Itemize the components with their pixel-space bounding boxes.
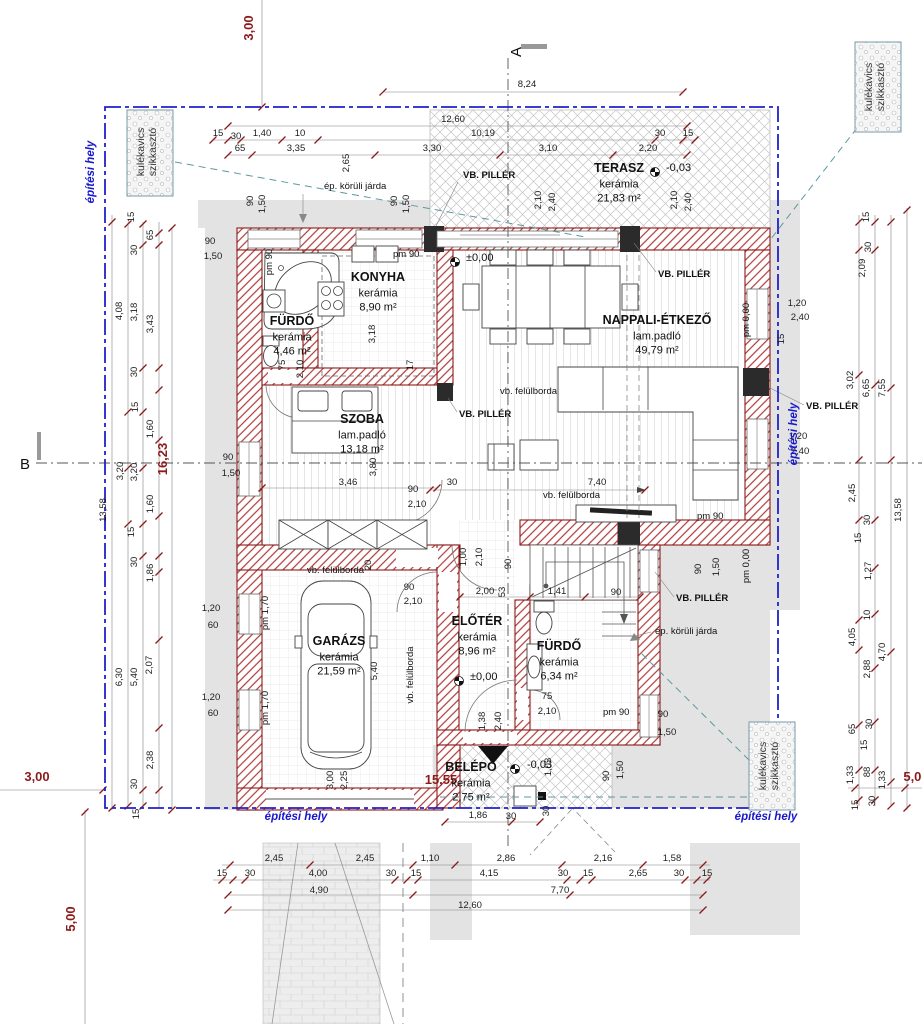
room-finish-label: kerámia xyxy=(319,652,359,664)
dim-label: 65 xyxy=(235,143,246,154)
dim-label: 3,10 xyxy=(539,143,558,154)
level-marker-icon xyxy=(455,677,464,686)
room-finish-label: kerámia xyxy=(599,179,639,191)
callout-label: pm 90 xyxy=(393,249,419,260)
dim-label: 90 xyxy=(245,196,256,207)
overall-dim-label: 5,00 xyxy=(903,769,922,784)
window xyxy=(239,594,260,634)
building-site-label: építési hely xyxy=(735,811,798,823)
window xyxy=(640,550,658,592)
dim-label: 2,09 xyxy=(857,259,868,278)
dim-label: 90 xyxy=(389,196,400,207)
dim-label: 4,05 xyxy=(847,628,858,647)
dim-label: 15 xyxy=(702,868,713,879)
dim-label: 7,70 xyxy=(551,885,570,896)
dim-label: 30 xyxy=(245,868,256,879)
dim-label: 1,60 xyxy=(145,495,156,514)
dim-label: 2,00 xyxy=(476,586,495,597)
dim-label: 3,46 xyxy=(339,477,358,488)
dim-label: 30 xyxy=(129,367,140,378)
dim-label: 4,90 xyxy=(310,885,329,896)
dim-label: 2,45 xyxy=(847,484,858,503)
level-label: ±0,00 xyxy=(470,671,497,683)
dim-label: 5,40 xyxy=(369,662,380,681)
callout-label: pm 90 xyxy=(603,707,629,718)
room-name-label: FÜRDŐ xyxy=(537,638,582,653)
dim-label: 15 xyxy=(850,800,861,811)
room-finish-label: kerámia xyxy=(539,657,579,669)
dim-label: 12,60 xyxy=(458,900,482,911)
dim-label: 15 xyxy=(859,740,870,751)
room-area-label: 8,96 m² xyxy=(458,646,496,658)
soakaway-label: kulékavics xyxy=(863,63,875,111)
room-finish-label: kerámia xyxy=(451,778,491,790)
dim-label: 1,20 xyxy=(202,692,221,703)
callout-label: vb. felülborda xyxy=(500,386,558,397)
dim-label: 4,70 xyxy=(877,643,888,662)
dim-label: 15 xyxy=(213,128,224,139)
room-area-label: 13,18 m² xyxy=(340,444,384,456)
callout-label: VB. PILLÉR xyxy=(806,401,858,412)
dim-label: 15 xyxy=(126,527,137,538)
dim-label: 30 xyxy=(386,868,397,879)
rc-pillar xyxy=(437,383,453,401)
dim-label: 60 xyxy=(208,708,219,719)
callout-label: vb. felülborda xyxy=(405,646,416,704)
window xyxy=(640,695,658,737)
section-marker-b: B xyxy=(20,456,30,473)
window xyxy=(239,690,260,730)
dim-label: 1,20 xyxy=(788,298,807,309)
dim-label: 30 xyxy=(867,796,878,807)
dim-label: 1,50 xyxy=(711,558,722,577)
armchair xyxy=(488,444,514,470)
dim-label: 30 xyxy=(506,811,517,822)
dim-label: 90 xyxy=(408,484,419,495)
soakaway-label: szikkasztó xyxy=(769,742,781,791)
dim-label: 30 xyxy=(674,868,685,879)
soakaway-label: szikkasztó xyxy=(875,63,887,112)
dim-label: 2,40 xyxy=(493,712,504,731)
dim-label: 65 xyxy=(847,724,858,735)
dim-label: 90 xyxy=(611,587,622,598)
room-finish-label: kerámia xyxy=(457,632,497,644)
callout-label: pm 0,00 xyxy=(741,303,752,337)
callout-label: vb. felülborda xyxy=(307,565,365,576)
dim-label: 13,58 xyxy=(893,498,904,522)
dim-label: 15 xyxy=(583,868,594,879)
callout-label: VB. PILLÉR xyxy=(459,409,511,420)
dim-label: 15 xyxy=(130,402,141,413)
overall-dim-label: 3,00 xyxy=(241,15,256,40)
rc-pillar xyxy=(618,520,640,545)
dim-label: 15 xyxy=(126,212,137,223)
dim-label: 6,30 xyxy=(114,668,125,687)
callout-label: pm 90 xyxy=(697,511,723,522)
dim-label: 30 xyxy=(863,242,874,253)
dim-label: 1,38 xyxy=(477,712,488,731)
level-marker-icon xyxy=(451,258,460,267)
dim-label: 65 xyxy=(145,230,156,241)
room-name-label: SZOBA xyxy=(340,412,384,426)
dim-label: 1,40 xyxy=(253,128,272,139)
dim-label: 1,86 xyxy=(469,810,488,821)
dim-label: 15 xyxy=(217,868,228,879)
dim-label: 12,60 xyxy=(441,114,465,125)
room-area-label: 8,90 m² xyxy=(359,302,397,314)
dim-label: 1,58 xyxy=(663,853,682,864)
window xyxy=(747,419,768,469)
dim-label: 4,08 xyxy=(114,302,125,321)
dim-label: 15 xyxy=(683,128,694,139)
dim-label: 1,50 xyxy=(615,761,626,780)
dim-label: 90 xyxy=(503,559,514,570)
dim-label: 15 xyxy=(776,334,787,345)
level-marker-icon xyxy=(511,765,520,774)
callout-label: VB. PILLÉR xyxy=(676,593,728,604)
overall-dim-label: 5,00 xyxy=(63,906,78,931)
washing-machine xyxy=(263,290,285,312)
floor-plan-drawing: 8,2412,6015301,401010,193015653,353,303,… xyxy=(0,0,922,1024)
window xyxy=(239,442,260,496)
tv-board xyxy=(576,505,676,522)
dim-label: 30 xyxy=(655,128,666,139)
dim-label: 5,40 xyxy=(129,668,140,687)
level-marker-icon xyxy=(651,168,660,177)
dim-label: 1,50 xyxy=(204,251,223,262)
callout-label: VB. PILLÉR xyxy=(463,170,515,181)
callout-label: pm 0,00 xyxy=(741,549,752,583)
dim-label: 7,40 xyxy=(588,477,607,488)
window xyxy=(248,230,300,248)
dim-label: 2,38 xyxy=(145,751,156,770)
dim-label: 2,88 xyxy=(862,660,873,679)
dim-label: 3,43 xyxy=(145,315,156,334)
room-name-label: ELŐTÉR xyxy=(452,613,503,628)
room-area-label: 21,59 m² xyxy=(317,666,361,678)
rc-pillar xyxy=(620,226,640,252)
window xyxy=(356,230,422,248)
dim-label: 2,25 xyxy=(339,771,350,790)
dim-label: 4,00 xyxy=(309,868,328,879)
dim-label: 10,19 xyxy=(471,128,495,139)
dim-label: 60 xyxy=(208,620,219,631)
dim-label: 30 xyxy=(558,868,569,879)
dim-label: 2,16 xyxy=(594,853,613,864)
room-finish-label: lam.padló xyxy=(633,331,681,343)
dim-label: 1,27 xyxy=(863,562,874,581)
dim-label: 10 xyxy=(295,128,306,139)
floor-plan-canvas: 8,2412,6015301,401010,193015653,353,303,… xyxy=(0,0,922,1024)
callout-label: pm 90 xyxy=(264,249,275,275)
dim-label: 1,41 xyxy=(548,586,567,597)
dim-label: 1,10 xyxy=(421,853,440,864)
soakaway-label: kulékavics xyxy=(757,742,769,790)
overall-dim-label: 16,23 xyxy=(155,443,170,476)
dim-label: 1,50 xyxy=(658,727,677,738)
dim-label: 30 xyxy=(129,245,140,256)
dim-label: 2,20 xyxy=(639,143,658,154)
callout-label: ép. körüli járda xyxy=(324,181,387,192)
dim-label: 3,20 xyxy=(115,462,126,481)
dim-label: 2,40 xyxy=(683,193,694,212)
dim-label: 17 xyxy=(405,360,416,371)
dim-label: 13,58 xyxy=(98,498,109,522)
dim-label: 3,18 xyxy=(367,325,378,344)
level-label: -0,03 xyxy=(666,162,691,174)
dim-label: 3,20 xyxy=(129,463,140,482)
toilet xyxy=(534,601,554,634)
level-label: ±0,00 xyxy=(466,252,493,264)
dim-label: 15 xyxy=(411,868,422,879)
room-area-label: 4,46 m² xyxy=(273,346,311,358)
dim-label: 2,65 xyxy=(341,154,352,173)
callout-label: ép. körüli járda xyxy=(655,626,718,637)
room-name-label: KONYHA xyxy=(351,270,405,284)
dim-label: 1,33 xyxy=(845,766,856,785)
dim-label: 2,10 xyxy=(538,706,557,717)
dim-label: 30 xyxy=(864,719,875,730)
wardrobe xyxy=(279,520,427,549)
callout-label: VB. PILLÉR xyxy=(658,269,710,280)
dim-label: 30 xyxy=(129,557,140,568)
room-name-label: GARÁZS xyxy=(313,633,366,648)
soakaway-label: szikkasztó xyxy=(147,128,159,177)
dim-label: 30 xyxy=(447,477,458,488)
room-name-label: NAPPALI-ÉTKEZŐ xyxy=(603,312,712,327)
callout-label: pm 1,70 xyxy=(260,691,271,725)
room-area-label: 49,79 m² xyxy=(635,345,679,357)
soakaway-label: kulékavics xyxy=(135,128,147,176)
dim-label: 88 xyxy=(862,767,873,778)
dim-label: 75 xyxy=(542,691,553,702)
dim-label: 1,33 xyxy=(877,771,888,790)
room-area-label: 6,34 m² xyxy=(540,671,578,683)
dim-label: 90 xyxy=(693,564,704,575)
dim-label: 30 xyxy=(231,131,242,142)
dim-label: 6,65 xyxy=(861,379,872,398)
dim-label: 15 xyxy=(131,809,142,820)
room-area-label: 2,75 m² xyxy=(452,792,490,804)
dim-label: 8,24 xyxy=(518,79,537,90)
overall-dim-label: 3,00 xyxy=(24,769,49,784)
dim-label: 2,10 xyxy=(295,360,306,379)
building-site-label: építési hely xyxy=(788,402,800,465)
dim-label: 90 xyxy=(601,771,612,782)
dim-label: 90 xyxy=(223,452,234,463)
dim-label: 3,02 xyxy=(845,371,856,390)
dim-label: 90 xyxy=(404,582,415,593)
room-finish-label: lam.padló xyxy=(338,430,386,442)
dim-label: 30 xyxy=(129,779,140,790)
dim-label: 1,86 xyxy=(145,564,156,583)
dim-label: 2,10 xyxy=(669,191,680,210)
dim-label: 3,80 xyxy=(368,458,379,477)
dim-label: 90 xyxy=(205,236,216,247)
rc-pillar xyxy=(743,368,769,396)
room-name-label: TERASZ xyxy=(594,161,644,175)
section-marker-a: A xyxy=(508,47,525,57)
coffee-table xyxy=(520,440,558,470)
dim-label: 2,10 xyxy=(474,548,485,567)
dim-label: 2,65 xyxy=(629,868,648,879)
dim-label: 53 xyxy=(497,587,508,598)
dim-label: 2,10 xyxy=(533,191,544,210)
dim-label: 2,07 xyxy=(144,656,155,675)
dim-label: 3,18 xyxy=(129,303,140,322)
dim-label: 1,50 xyxy=(401,195,412,214)
dim-label: 2,10 xyxy=(408,499,427,510)
callout-label: vb. felülborda xyxy=(543,490,601,501)
building-site-label: építési hely xyxy=(265,811,328,823)
dim-label: 2,45 xyxy=(356,853,375,864)
dim-label: 3,00 xyxy=(325,771,336,790)
dim-label: 1,20 xyxy=(202,603,221,614)
dim-label: 20 xyxy=(363,560,374,571)
dim-label: 7,55 xyxy=(877,379,888,398)
dim-label: 3,30 xyxy=(423,143,442,154)
dim-label: 3,35 xyxy=(287,143,306,154)
dim-label: 1,50 xyxy=(222,468,241,479)
dim-label: 30 xyxy=(862,515,873,526)
dim-label: 4,15 xyxy=(480,868,499,879)
dim-label: 15 xyxy=(861,212,872,223)
dim-label: 1,60 xyxy=(145,420,156,439)
level-label: -0,03 xyxy=(527,759,552,771)
dim-label: 15 xyxy=(853,533,864,544)
dim-label: 1,00 xyxy=(458,548,469,567)
room-finish-label: kerámia xyxy=(272,332,312,344)
room-name-label: FÜRDŐ xyxy=(270,313,315,328)
dim-label: 2,40 xyxy=(791,312,810,323)
dim-label: 2,45 xyxy=(265,853,284,864)
dim-label: 30 xyxy=(541,806,552,817)
dim-label: 90 xyxy=(658,709,669,720)
dim-label: 2,10 xyxy=(404,596,423,607)
callout-label: pm 1,70 xyxy=(260,596,271,630)
dim-label: 75 xyxy=(277,360,288,371)
room-area-label: 21,83 m² xyxy=(597,193,641,205)
building-site-label: építési hely xyxy=(85,140,97,203)
terrace-sliding-door xyxy=(437,231,618,247)
room-finish-label: kerámia xyxy=(358,288,398,300)
dim-label: 10 xyxy=(862,610,873,621)
dim-label: 2,86 xyxy=(497,853,516,864)
room-name-label: BELÉPŐ xyxy=(445,759,497,774)
dim-label: 1,50 xyxy=(257,195,268,214)
dim-label: 2,40 xyxy=(547,193,558,212)
